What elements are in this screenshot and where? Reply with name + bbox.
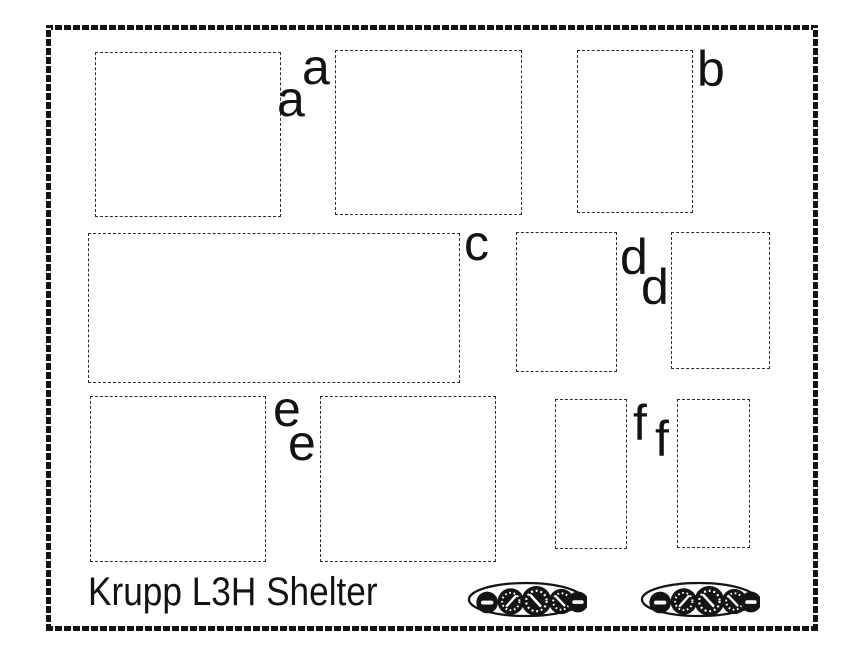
part-label-d-lower: d (641, 262, 669, 312)
part-label-f-lower: f (655, 414, 669, 464)
instrument-panel-decal (640, 581, 760, 619)
gauge-icon (671, 588, 697, 614)
decal-outline-d2 (671, 232, 770, 369)
knob-icon (649, 592, 671, 614)
decal-outline-f1 (555, 399, 627, 549)
part-label-a-lower: a (277, 74, 305, 124)
gauge-icon (521, 586, 551, 616)
part-label-e-lower: e (288, 418, 316, 468)
decal-sheet-page: a a b c d d e e f f Krupp L3H Shelter (0, 0, 850, 651)
instrument-panel-decal (467, 581, 587, 619)
decal-outline-e1 (90, 396, 266, 562)
knob-icon (476, 592, 498, 614)
sheet-title: Krupp L3H Shelter (88, 572, 378, 612)
decal-outline-a2 (335, 50, 522, 215)
decal-outline-c (88, 233, 460, 383)
part-label-f-upper: f (633, 398, 647, 448)
decal-outline-e2 (320, 396, 496, 562)
part-label-b: b (697, 44, 725, 94)
frame-edge-top (46, 25, 818, 30)
gauge-icon (694, 586, 724, 616)
frame-edge-right (813, 25, 818, 631)
decal-outline-b (577, 50, 693, 213)
gauge-icon (498, 588, 524, 614)
frame-edge-left (46, 25, 51, 631)
decal-outline-a1 (95, 52, 281, 217)
frame-edge-bottom (46, 626, 818, 631)
part-label-a-upper: a (302, 42, 330, 92)
part-label-c: c (464, 218, 489, 268)
decal-outline-f2 (677, 399, 750, 548)
decal-outline-d1 (516, 232, 617, 372)
